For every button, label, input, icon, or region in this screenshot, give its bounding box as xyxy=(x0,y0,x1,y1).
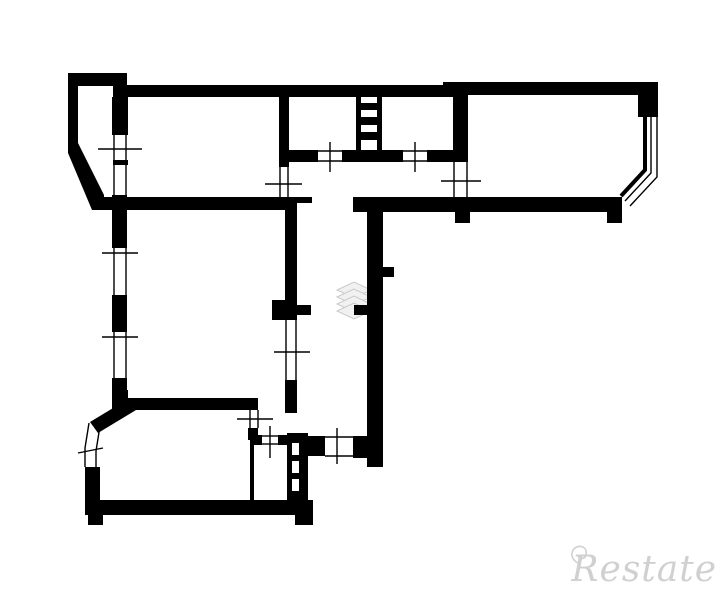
floor-plan xyxy=(0,0,725,598)
watermark-text: Restate xyxy=(571,552,717,588)
swirl-icon xyxy=(565,542,591,568)
floorplan-page: Restate xyxy=(0,0,725,598)
watermark-brand-label: Restate xyxy=(571,549,717,590)
vent-shaft-slots xyxy=(292,443,299,491)
